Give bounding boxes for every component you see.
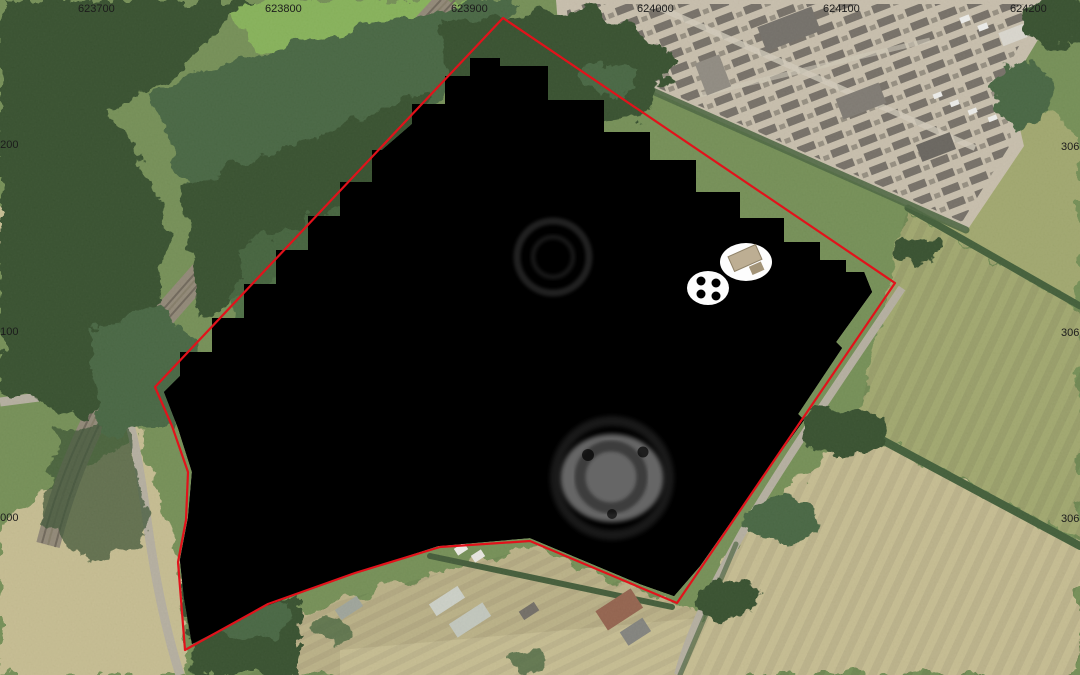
map-image <box>0 0 1080 675</box>
map-canvas[interactable]: 623700 623800 623900 624000 624100 62420… <box>0 0 1080 675</box>
